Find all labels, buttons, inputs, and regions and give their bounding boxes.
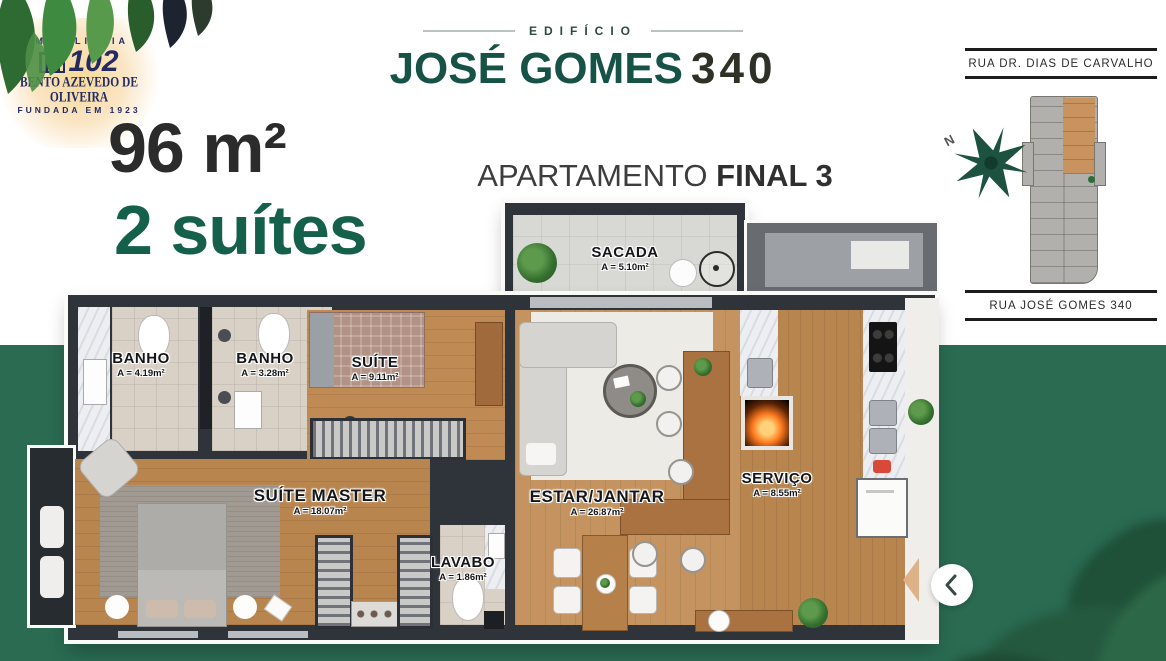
bar-stool xyxy=(632,541,658,567)
faucet-red xyxy=(873,460,891,473)
side-terrace xyxy=(30,448,73,625)
floor-mat xyxy=(484,611,504,629)
decor-tray xyxy=(264,594,292,621)
room-label-suite-master: SUÍTE MASTERA = 18.07m² xyxy=(240,487,400,517)
apartment-final-label: APARTAMENTO FINAL 3 xyxy=(470,158,840,194)
sink-icon xyxy=(869,428,897,454)
agency-logo-number: 102 xyxy=(4,47,154,77)
dining-chair xyxy=(553,586,581,614)
pillow xyxy=(184,600,216,618)
room-servico xyxy=(740,310,905,625)
sink-icon xyxy=(869,400,897,426)
wardrobe xyxy=(315,535,353,629)
bed xyxy=(137,503,227,627)
street-label-bottom: RUA JOSÉ GOMES 340 xyxy=(965,290,1157,321)
room-label-suite: SUÍTEA = 9.11m² xyxy=(320,355,430,383)
bar-stool xyxy=(656,365,682,391)
dining-chair xyxy=(553,548,581,578)
wardrobe xyxy=(310,418,466,460)
page: IMOBILIÁRIA 102 BENTO AZEVEDO DE OLIVEIR… xyxy=(0,0,1166,661)
street-bottom-text: RUA JOSÉ GOMES 340 xyxy=(965,293,1157,318)
sink-icon xyxy=(747,358,773,388)
stove-icon xyxy=(869,322,897,372)
agency-logo-name: BENTO AZEVEDO DE OLIVEIRA xyxy=(4,75,154,105)
lounger xyxy=(40,506,64,548)
plant-icon xyxy=(517,243,557,283)
fireplace-icon xyxy=(741,396,793,450)
desk xyxy=(475,322,503,406)
building-plan-thumbnail xyxy=(1022,90,1106,288)
agency-logo: IMOBILIÁRIA 102 BENTO AZEVEDO DE OLIVEIR… xyxy=(4,36,154,115)
pillow xyxy=(146,600,178,618)
unit-suites-text: 2 suítes xyxy=(114,190,367,270)
washing-machine xyxy=(856,478,908,538)
building-header: EDIFÍCIO JOSÉ GOMES340 xyxy=(383,24,783,94)
apartment-final-value: FINAL 3 xyxy=(716,158,833,193)
balcony-chair xyxy=(699,251,735,287)
banho1-counter xyxy=(78,307,110,451)
room-label-banho2: BANHOA = 3.28m² xyxy=(210,351,320,379)
window xyxy=(228,631,308,638)
room-label-estar: ESTAR/JANTARA = 26.87m² xyxy=(517,488,677,518)
building-number: 340 xyxy=(691,44,776,93)
plant-icon xyxy=(630,391,646,407)
back-button[interactable] xyxy=(931,564,973,606)
room-label-lavabo: LAVABOA = 1.86m² xyxy=(423,555,503,583)
street-top-text: RUA DR. DIAS DE CARVALHO xyxy=(965,51,1157,76)
lounger xyxy=(40,556,64,598)
room-banho1 xyxy=(112,307,198,451)
header-rule-left xyxy=(423,30,515,32)
street-label-top: RUA DR. DIAS DE CARVALHO xyxy=(965,48,1157,79)
chevron-left-icon xyxy=(931,564,973,606)
room-label-banho1: BANHOA = 4.19m² xyxy=(86,351,196,379)
highlighted-unit xyxy=(1063,98,1095,174)
header-edificio-label: EDIFÍCIO xyxy=(529,24,637,38)
room-suite-master xyxy=(75,459,430,625)
header-rule-right xyxy=(651,30,743,32)
window xyxy=(118,631,198,638)
plant-icon xyxy=(908,399,934,425)
toilet-icon xyxy=(452,577,484,621)
shower-icon xyxy=(218,391,231,404)
counter xyxy=(740,310,778,396)
shower-icon xyxy=(218,329,231,342)
plant-icon xyxy=(798,598,828,628)
bar-stool xyxy=(680,547,706,573)
unit-area-text: 96 m² xyxy=(108,108,286,188)
building-columns-icon xyxy=(39,52,65,73)
coffee-table xyxy=(603,364,657,418)
bar-stool xyxy=(656,411,682,437)
dining-chair xyxy=(629,586,657,614)
dining-table xyxy=(582,535,628,631)
room-label-servico: SERVIÇOA = 8.55m² xyxy=(727,471,827,499)
decor-bowl xyxy=(708,610,730,632)
nightstand xyxy=(233,595,257,619)
building-title: JOSÉ GOMES340 xyxy=(383,44,783,94)
nightstand xyxy=(105,595,129,619)
room-label-sacada: SACADAA = 5.10m² xyxy=(565,245,685,273)
balcony-door xyxy=(530,297,712,308)
sofa-chaise xyxy=(519,322,617,368)
margin-arrow-icon xyxy=(903,558,919,602)
bar-stool xyxy=(668,459,694,485)
sink-icon xyxy=(234,391,262,429)
roof-slab xyxy=(747,223,937,297)
